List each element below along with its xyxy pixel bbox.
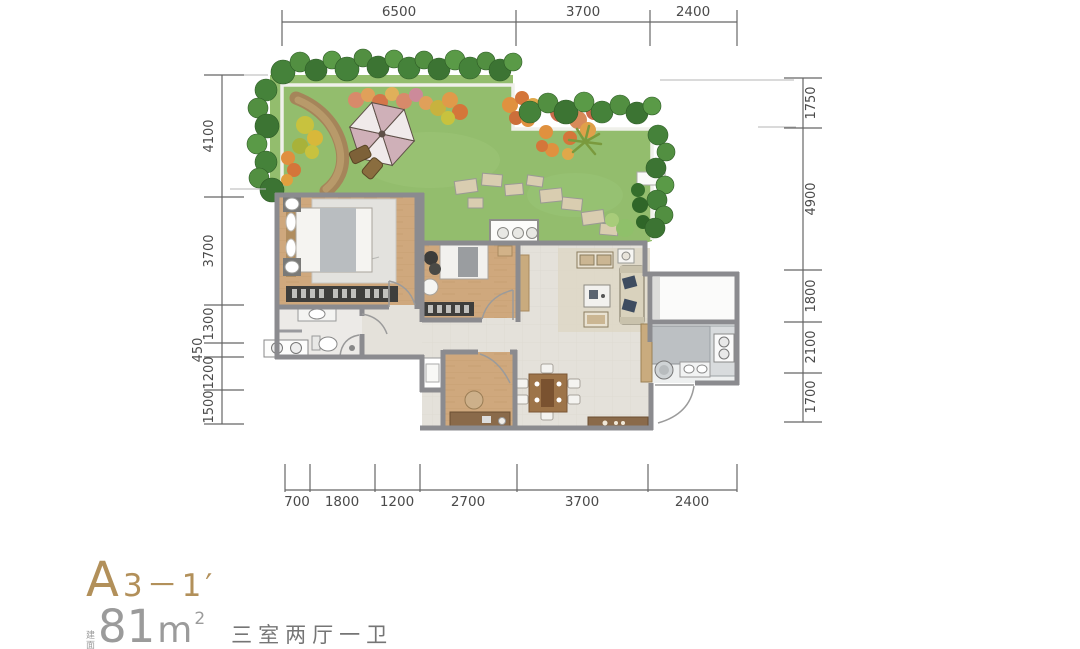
rooms-label: 三室两厅一卫 bbox=[231, 619, 393, 649]
dim-right-1800: 1800 bbox=[804, 279, 819, 312]
white-room-floor bbox=[650, 274, 737, 322]
study-chair bbox=[465, 391, 483, 409]
entry-door-arc bbox=[658, 386, 694, 423]
dimension-chain-right: 1750 4900 1800 2100 1700 bbox=[784, 78, 822, 422]
area-prefix-label: 建面约 bbox=[86, 631, 97, 649]
second-side-table bbox=[498, 246, 512, 256]
second-blanket bbox=[458, 247, 478, 277]
dim-left-3700: 3700 bbox=[202, 234, 217, 267]
burner-2 bbox=[719, 349, 729, 359]
dimension-chain-left: 4100 3700 1300 450 1200 1500 bbox=[191, 75, 244, 424]
burner-1 bbox=[719, 337, 729, 347]
dim-bottom-2700: 2700 bbox=[451, 494, 485, 510]
dim-bottom-700: 700 bbox=[284, 494, 310, 510]
dim-bottom-1800: 1800 bbox=[325, 494, 359, 510]
dim-left-4100: 4100 bbox=[202, 119, 217, 152]
dim-right-2100: 2100 bbox=[804, 330, 819, 363]
shower-head bbox=[349, 345, 355, 351]
living-room-furniture bbox=[558, 248, 650, 332]
unit-code: A3－1′ bbox=[86, 556, 393, 605]
dim-bottom-3700: 3700 bbox=[565, 494, 599, 510]
white-room-shelf bbox=[653, 277, 660, 319]
bathroom-sink bbox=[309, 309, 325, 319]
dim-top-6500: 6500 bbox=[382, 4, 416, 20]
dim-top-2400: 2400 bbox=[676, 4, 710, 20]
area-unit: m bbox=[157, 610, 192, 649]
floor-plan-drawing: 6500 3700 2400 700 1800 1200 2700 3700 2… bbox=[0, 0, 1080, 649]
kitchen-island bbox=[652, 326, 710, 364]
master-bedroom-furniture bbox=[283, 196, 398, 302]
tv-console bbox=[520, 255, 529, 311]
dim-right-1700: 1700 bbox=[804, 380, 819, 413]
sofa bbox=[620, 266, 644, 324]
dim-bottom-2400: 2400 bbox=[675, 494, 709, 510]
dim-left-1500: 1500 bbox=[202, 390, 217, 423]
master-pillow-2 bbox=[286, 239, 296, 257]
dim-bottom-1200: 1200 bbox=[380, 494, 414, 510]
dim-left-1300: 1300 bbox=[202, 307, 217, 340]
washer-2 bbox=[291, 343, 302, 354]
dim-right-1750: 1750 bbox=[804, 86, 819, 119]
floor-plan-page: 6500 3700 2400 700 1800 1200 2700 3700 2… bbox=[0, 0, 1080, 649]
master-pillow-1 bbox=[286, 213, 296, 231]
area-line: 建面约 81 m 2 三室两厅一卫 bbox=[86, 607, 393, 649]
dim-top-3700: 3700 bbox=[566, 4, 600, 20]
ac-niche bbox=[423, 358, 442, 390]
kitchen-fixtures bbox=[641, 324, 737, 382]
master-blanket bbox=[320, 208, 356, 272]
dimension-chain-bottom: 700 1800 1200 2700 3700 2400 bbox=[284, 464, 737, 510]
area-number: 81 bbox=[98, 607, 155, 647]
dim-left-1200: 1200 bbox=[202, 356, 217, 389]
dim-right-4900: 4900 bbox=[804, 182, 819, 215]
toilet bbox=[319, 337, 337, 351]
title-block: A3－1′ 建面约 81 m 2 三室两厅一卫 bbox=[86, 556, 393, 649]
dimension-chain-top: 6500 3700 2400 bbox=[282, 4, 737, 46]
unit-code-rest: 3－1′ bbox=[123, 568, 217, 604]
area-exponent: 2 bbox=[194, 609, 205, 629]
hallway-floor bbox=[362, 305, 422, 357]
